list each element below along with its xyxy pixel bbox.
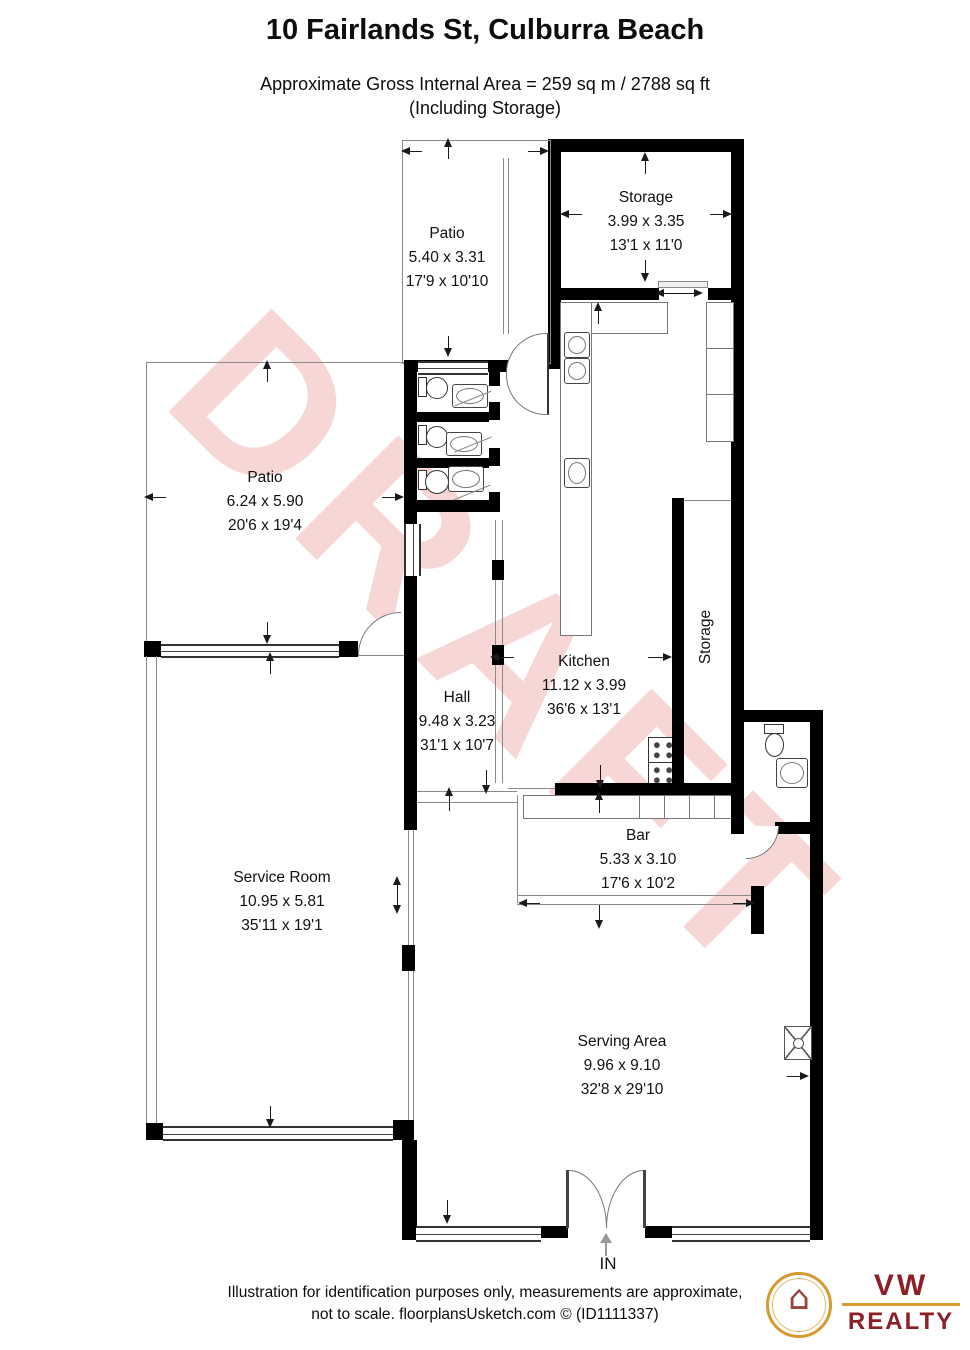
dim-arrow-right-icon [787,1076,801,1077]
room-label-storage: Storage 3.99 x 3.35 13'1 x 11'0 [556,186,736,258]
wall-post [144,641,161,657]
toilet-icon [765,733,784,757]
toilet-icon [426,426,448,448]
window [418,361,488,375]
dim-arrow-up-icon [448,146,449,159]
room-name: Bar [548,824,728,848]
dim-arrow-down-icon [600,765,601,781]
fireplace-circle [793,1038,804,1049]
room-name: Patio [175,466,355,490]
wall-thin [508,788,555,789]
wall-thin [408,830,414,1128]
sink-icon [446,432,482,456]
wall-post [339,641,358,657]
dim-arrow-down-icon [486,770,487,786]
window [416,1226,541,1242]
wall-post [402,945,415,971]
wall [555,783,732,795]
wall-thin [517,895,753,905]
door-arc [569,1170,607,1228]
room-name: Serving Area [530,1030,714,1054]
door-leaf [643,1170,646,1228]
step-edge [417,791,517,792]
room-name: Storage [556,186,736,210]
wall-thin [684,500,731,501]
window [161,644,339,658]
dim-arrow-right-icon [528,151,541,152]
kitchen-counter [706,302,734,350]
kitchen-counter [706,348,734,396]
room-dim-imperial: 31'1 x 10'7 [367,734,547,758]
wall-post [489,372,500,386]
bar-counter [523,795,737,819]
wall-thin [517,795,518,903]
dim-arrow-up-icon [449,795,450,811]
room-dim-imperial: 17'6 x 10'2 [548,872,728,896]
window [672,1226,810,1242]
sink-icon [776,758,808,788]
floorplan-page: 10 Fairlands St, Culburra Beach Approxim… [0,0,970,1350]
gross-area-line: Approximate Gross Internal Area = 259 sq… [0,74,970,95]
dim-arrow-left-icon [409,151,422,152]
room-dim-metric: 5.33 x 3.10 [548,848,728,872]
dim-arrow-left-icon [152,497,166,498]
sliding-door-panel [658,281,708,288]
wall [402,1140,417,1240]
room-label-bar: Bar 5.33 x 3.10 17'6 x 10'2 [548,824,728,896]
counter-divider [664,796,665,818]
wall-post [492,560,504,580]
sink-icon [564,358,590,384]
dim-arrow-left-icon [526,903,540,904]
room-dim-imperial: 17'9 x 10'10 [357,270,537,294]
room-name: Hall [367,686,547,710]
house-crest-icon: ⌂ [766,1278,832,1318]
room-name: Patio [357,222,537,246]
wall [731,720,744,834]
dim-arrow-horizontal-icon [663,293,695,294]
dim-arrow-up-icon [270,660,271,674]
wall [751,886,764,934]
dim-arrow-down-icon [448,336,449,349]
logo-name-top: VW [842,1270,960,1302]
dim-arrow-down-icon [447,1200,448,1216]
toilet-icon [426,377,448,399]
wall [645,1226,672,1238]
room-dim-imperial: 32'8 x 29'10 [530,1078,714,1102]
step-edge [417,802,517,803]
toilet-icon [425,470,449,494]
page-title: 10 Fairlands St, Culburra Beach [0,14,970,47]
door-arc [606,1170,644,1228]
dim-arrow-down-icon [267,622,268,636]
wall-post [489,402,500,420]
disclaimer-line2: not to scale. floorplansUsketch.com © (I… [105,1306,865,1324]
dim-arrow-up-icon [645,160,646,174]
door-leaf [566,1170,569,1228]
dim-arrow-right-icon [382,497,396,498]
wall [810,710,823,1240]
room-label-patio-left: Patio 6.24 x 5.90 20'6 x 19'4 [175,466,355,538]
room-dim-metric: 9.96 x 9.10 [530,1054,714,1078]
dim-arrow-up-icon [267,368,268,382]
fireplace-icon [784,1026,812,1060]
wall [708,288,731,300]
dim-arrow-down-icon [645,260,646,274]
room-dim-metric: 3.99 x 3.35 [556,210,736,234]
room-dim-imperial: 13'1 x 11'0 [556,234,736,258]
dim-arrow-up-icon [599,799,600,813]
sink-icon [564,458,590,488]
dim-arrow-down-icon [599,905,600,921]
vw-realty-logo-text: VW REALTY [842,1270,960,1336]
room-dim-imperial: 35'11 x 19'1 [192,914,372,938]
dim-arrow-vertical-icon [397,884,398,906]
window [163,1126,393,1141]
including-storage-line: (Including Storage) [0,98,970,119]
wall [561,288,659,300]
room-label-hall: Hall 9.48 x 3.23 31'1 x 10'7 [367,686,547,758]
wall-post [146,1123,163,1140]
dim-arrow-down-icon [270,1106,271,1120]
window [404,524,421,576]
wall-post [489,448,500,466]
wall [775,822,810,834]
room-name: Service Room [192,866,372,890]
room-label-serving-area: Serving Area 9.96 x 9.10 32'8 x 29'10 [530,1030,714,1102]
room-dim-metric: 10.95 x 5.81 [192,890,372,914]
room-label-storage-corridor: Storage [697,577,717,697]
room-name: Kitchen [494,650,674,674]
disclaimer-line1: Illustration for identification purposes… [105,1284,865,1302]
logo-name-bottom: REALTY [842,1308,960,1336]
wall [404,512,417,524]
room-dim-metric: 6.24 x 5.90 [175,490,355,514]
wall [548,139,744,152]
wall [541,1226,568,1238]
counter-divider [714,796,715,818]
room-dim-imperial: 20'6 x 19'4 [175,514,355,538]
room-dim-metric: 5.40 x 3.31 [357,246,537,270]
wall [417,412,489,422]
counter-divider [639,796,640,818]
wall-thin [146,656,157,1126]
wall-post [393,1120,414,1140]
kitchen-counter [706,394,734,442]
entrance-label: IN [594,1254,622,1274]
dim-arrow-right-icon [733,903,747,904]
wall [672,498,684,795]
wall [404,500,500,512]
counter-divider [689,796,690,818]
logo-divider [842,1303,960,1306]
vw-realty-logo: ⌂ VW REALTY [766,1270,962,1344]
room-label-service-room: Service Room 10.95 x 5.81 35'11 x 19'1 [192,866,372,938]
wall-post [489,492,500,512]
room-label-patio-top: Patio 5.40 x 3.31 17'9 x 10'10 [357,222,537,294]
dim-arrow-up-icon [598,310,599,324]
room-dim-metric: 9.48 x 3.23 [367,710,547,734]
wall [404,372,417,512]
sink-icon [564,332,590,358]
